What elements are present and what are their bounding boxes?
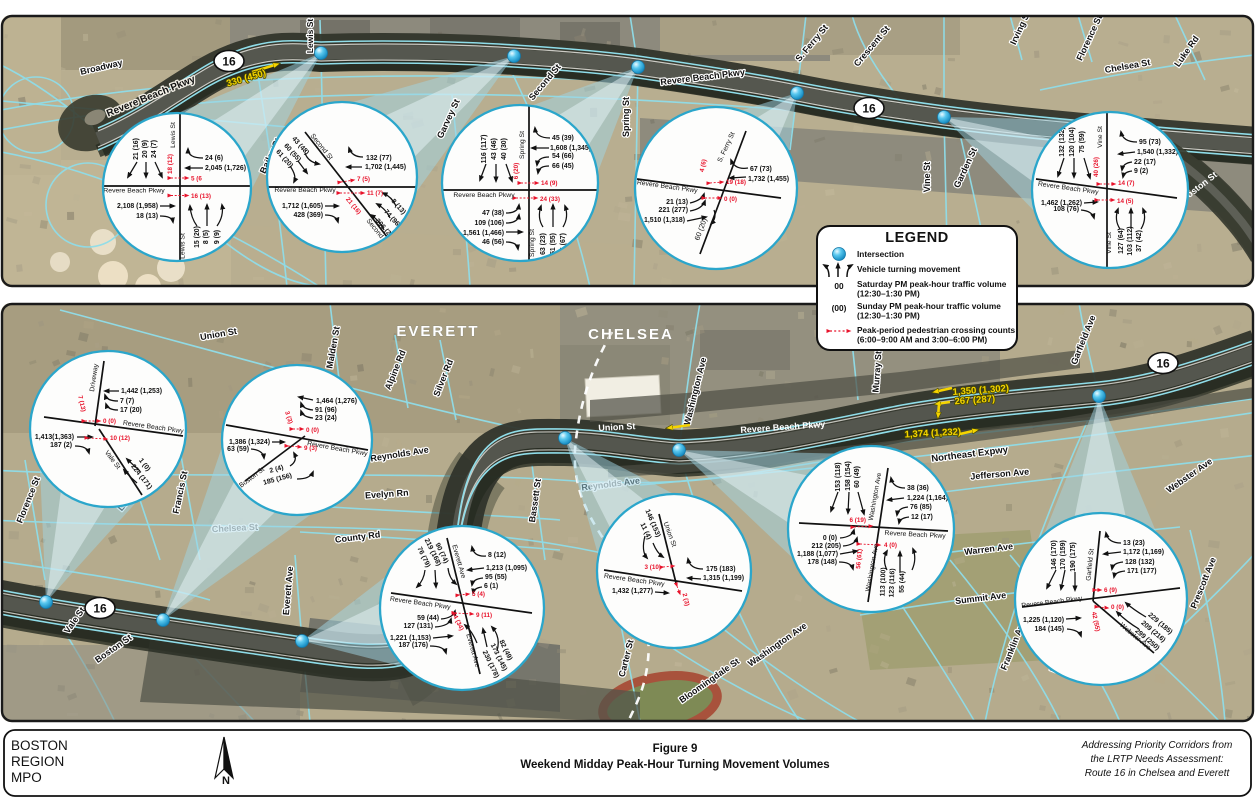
svg-text:MPO: MPO (11, 770, 42, 785)
svg-text:1,608 (1,345): 1,608 (1,345) (550, 145, 591, 152)
svg-text:LEGEND: LEGEND (885, 230, 948, 246)
svg-text:1,464 (1,276): 1,464 (1,276) (316, 398, 357, 405)
svg-text:5 (6: 5 (6 (191, 176, 202, 183)
svg-text:Spring St: Spring St (519, 131, 526, 159)
svg-text:16: 16 (862, 102, 876, 116)
svg-text:8 (12): 8 (12) (488, 552, 506, 559)
svg-text:95 (55): 95 (55) (485, 574, 507, 581)
svg-text:1,188 (1,077): 1,188 (1,077) (797, 551, 838, 558)
svg-text:Revere Beach Pkwy: Revere Beach Pkwy (274, 187, 336, 194)
svg-text:66 (45): 66 (45) (552, 163, 574, 170)
svg-text:37 (42): 37 (42) (1136, 230, 1143, 252)
svg-text:16: 16 (222, 55, 236, 69)
svg-text:1,221 (1,153): 1,221 (1,153) (390, 635, 431, 642)
svg-text:5 (4): 5 (4) (472, 591, 485, 598)
svg-text:21 (13): 21 (13) (666, 199, 688, 206)
svg-text:Lewis St: Lewis St (305, 19, 315, 54)
svg-text:Spring St: Spring St (621, 97, 631, 137)
svg-text:12 (17): 12 (17) (911, 514, 933, 521)
svg-text:9 (3): 9 (3) (304, 445, 317, 452)
svg-text:43 (46): 43 (46) (491, 138, 498, 160)
svg-text:187 (176): 187 (176) (399, 642, 429, 649)
svg-text:116 (117): 116 (117) (481, 135, 488, 164)
svg-text:(12:30–1:30 PM): (12:30–1:30 PM) (857, 311, 920, 321)
svg-text:109 (106): 109 (106) (475, 220, 505, 227)
svg-text:Revere Beach Pkwy: Revere Beach Pkwy (453, 192, 515, 199)
svg-text:23 (24): 23 (24) (315, 415, 337, 422)
svg-text:EVERETT: EVERETT (396, 323, 479, 340)
svg-text:40 (30): 40 (30) (501, 138, 508, 160)
svg-text:20 (9): 20 (9) (142, 140, 149, 158)
svg-text:0 (0): 0 (0) (823, 535, 837, 542)
svg-text:120 (104): 120 (104) (1069, 127, 1076, 157)
svg-text:22 (17): 22 (17) (1134, 159, 1156, 166)
svg-text:24 (33): 24 (33) (540, 196, 560, 203)
svg-text:153 (118): 153 (118) (835, 462, 842, 491)
svg-text:16: 16 (93, 602, 107, 616)
svg-text:N: N (222, 775, 230, 787)
svg-text:0 (0): 0 (0) (724, 196, 737, 203)
svg-text:40 (26): 40 (26) (1093, 157, 1100, 177)
svg-text:75 (59): 75 (59) (1079, 131, 1086, 153)
svg-text:(12:30–1:30 PM): (12:30–1:30 PM) (857, 289, 920, 299)
svg-text:Route 16 in Chelsea and Everet: Route 16 in Chelsea and Everett (1085, 768, 1231, 779)
svg-text:7 (5): 7 (5) (357, 176, 370, 183)
svg-text:1,213 (1,095): 1,213 (1,095) (486, 565, 527, 572)
svg-text:Vine St: Vine St (1097, 126, 1104, 148)
svg-text:128 (132): 128 (132) (1125, 559, 1155, 566)
svg-text:Vine St: Vine St (922, 162, 932, 192)
svg-text:1,540 (1,332): 1,540 (1,332) (1137, 149, 1178, 156)
svg-text:175 (183): 175 (183) (706, 566, 736, 573)
svg-text:1,510 (1,318): 1,510 (1,318) (644, 217, 685, 224)
svg-text:Figure 9: Figure 9 (653, 743, 698, 755)
svg-text:54 (66): 54 (66) (552, 153, 574, 160)
svg-text:0 (0): 0 (0) (1111, 604, 1124, 611)
svg-text:9 (11): 9 (11) (476, 612, 492, 619)
svg-text:127 (64): 127 (64) (1118, 228, 1125, 254)
svg-text:1,712 (1,605): 1,712 (1,605) (282, 203, 323, 210)
svg-text:15 (20): 15 (20) (194, 226, 201, 248)
svg-text:1,732 (1,455): 1,732 (1,455) (748, 176, 789, 183)
svg-text:2,045 (1,726): 2,045 (1,726) (205, 165, 246, 172)
svg-text:(6:00–9:00 AM and 3:00–6:00 PM: (6:00–9:00 AM and 3:00–6:00 PM) (857, 335, 987, 345)
svg-text:9 (9): 9 (9) (214, 230, 221, 244)
svg-text:CHELSEA: CHELSEA (588, 326, 674, 343)
svg-text:19 (18): 19 (18) (726, 179, 746, 186)
svg-text:47 (38): 47 (38) (482, 210, 504, 217)
svg-text:Spring St: Spring St (529, 229, 536, 257)
svg-text:132 (132): 132 (132) (1059, 127, 1066, 157)
svg-text:103 (112): 103 (112) (1127, 226, 1134, 255)
svg-text:BOSTON: BOSTON (11, 738, 68, 753)
svg-text:Saturday PM peak-hour traffic: Saturday PM peak-hour traffic volume (857, 279, 1007, 289)
svg-text:18 (12): 18 (12) (167, 154, 174, 174)
svg-text:14 (5): 14 (5) (1117, 198, 1133, 205)
svg-text:127 (131): 127 (131) (404, 623, 434, 630)
svg-text:1,702 (1,445): 1,702 (1,445) (365, 164, 406, 171)
svg-text:4 (0): 4 (0) (884, 542, 897, 549)
svg-text:63 (59): 63 (59) (227, 446, 249, 453)
svg-text:1,442 (1,253): 1,442 (1,253) (121, 388, 162, 395)
svg-text:Revere Beach Pkwy: Revere Beach Pkwy (103, 188, 165, 195)
svg-text:6 (1): 6 (1) (484, 583, 498, 590)
svg-text:Sunday PM peak-hour traffic vo: Sunday PM peak-hour traffic volume (857, 301, 1001, 311)
svg-text:1,561 (1,466): 1,561 (1,466) (463, 230, 504, 237)
svg-text:6 (9): 6 (9) (1104, 587, 1117, 594)
svg-text:1,225 (1,120): 1,225 (1,120) (1023, 617, 1064, 624)
svg-text:212 (205): 212 (205) (812, 543, 842, 550)
svg-text:63 (23): 63 (23) (540, 233, 547, 255)
svg-text:Peak-period pedestrian crossin: Peak-period pedestrian crossing counts (857, 325, 1016, 335)
svg-text:18 (13): 18 (13) (136, 213, 158, 220)
svg-text:Weekend Midday Peak-Hour Turni: Weekend Midday Peak-Hour Turning Movemen… (520, 759, 829, 771)
svg-text:Vine St: Vine St (1106, 232, 1113, 254)
svg-text:3 (10): 3 (10) (645, 564, 661, 571)
svg-text:67 (73): 67 (73) (750, 166, 772, 173)
svg-text:21 (16): 21 (16) (133, 138, 140, 160)
svg-text:46 (56): 46 (56) (482, 239, 504, 246)
svg-text:1,224 (1,164): 1,224 (1,164) (907, 495, 948, 502)
svg-text:00: 00 (834, 281, 844, 291)
svg-text:8 (5): 8 (5) (203, 230, 210, 244)
svg-text:17 (20): 17 (20) (120, 407, 142, 414)
svg-text:428 (369): 428 (369) (294, 212, 324, 219)
svg-text:187 (2): 187 (2) (50, 442, 72, 449)
svg-text:59 (44): 59 (44) (417, 615, 439, 622)
svg-text:221 (277): 221 (277) (659, 207, 689, 214)
svg-text:6 (20): 6 (20) (513, 163, 520, 179)
svg-text:1,413(1,363): 1,413(1,363) (35, 434, 74, 441)
svg-text:158 (154): 158 (154) (845, 461, 852, 491)
svg-text:16: 16 (1156, 357, 1170, 371)
svg-text:190 (175): 190 (175) (1070, 542, 1077, 572)
svg-text:0 (0): 0 (0) (103, 418, 116, 425)
svg-text:38 (36): 38 (36) (907, 485, 929, 492)
svg-text:Addressing Priority Corridors: Addressing Priority Corridors from (1081, 740, 1233, 751)
svg-text:16 (13): 16 (13) (191, 193, 211, 200)
svg-text:171 (177): 171 (177) (1127, 568, 1157, 575)
svg-text:REGION: REGION (11, 754, 64, 769)
svg-text:7 (7): 7 (7) (120, 398, 134, 405)
svg-text:14 (7): 14 (7) (1118, 180, 1134, 187)
svg-text:(00): (00) (832, 303, 847, 313)
svg-text:11 (7): 11 (7) (367, 190, 383, 197)
svg-text:1,172 (1,169): 1,172 (1,169) (1123, 549, 1164, 556)
svg-text:45 (39): 45 (39) (552, 135, 574, 142)
svg-text:132 (77): 132 (77) (366, 155, 392, 162)
svg-text:1,432 (1,277): 1,432 (1,277) (612, 588, 653, 595)
svg-text:123 (116): 123 (116) (888, 568, 896, 597)
svg-text:91 (96): 91 (96) (315, 407, 337, 414)
svg-text:184 (145): 184 (145) (1035, 626, 1065, 633)
svg-text:178 (148): 178 (148) (808, 559, 838, 566)
svg-text:146 (170): 146 (170) (1051, 540, 1058, 570)
svg-text:the LRTP Needs Assessment:: the LRTP Needs Assessment: (1090, 754, 1223, 765)
svg-text:60 (49): 60 (49) (854, 466, 861, 488)
svg-text:9 (2): 9 (2) (1134, 168, 1148, 175)
svg-text:24 (6): 24 (6) (205, 155, 223, 162)
svg-text:14 (9): 14 (9) (541, 180, 557, 187)
svg-text:0 (0): 0 (0) (306, 427, 319, 434)
svg-text:113 (100): 113 (100) (879, 567, 887, 596)
svg-text:55 (44): 55 (44) (899, 571, 907, 593)
svg-text:Union St: Union St (598, 421, 635, 433)
svg-text:1,386 (1,324): 1,386 (1,324) (229, 439, 270, 446)
svg-text:6 (19): 6 (19) (850, 517, 866, 524)
svg-text:76 (85): 76 (85) (910, 504, 932, 511)
svg-text:1,315 (1,199): 1,315 (1,199) (703, 575, 744, 582)
svg-text:108 (76): 108 (76) (1053, 206, 1079, 213)
svg-text:13 (23): 13 (23) (1123, 540, 1145, 547)
svg-text:2,108 (1,958): 2,108 (1,958) (117, 203, 158, 210)
svg-text:170 (159): 170 (159) (1060, 540, 1067, 570)
svg-text:Intersection: Intersection (857, 249, 904, 259)
svg-text:95 (73): 95 (73) (1139, 139, 1161, 146)
svg-text:Lewis St: Lewis St (170, 122, 177, 148)
svg-text:Vehicle turning movement: Vehicle turning movement (857, 264, 961, 274)
svg-text:24 (7): 24 (7) (151, 140, 158, 158)
svg-text:10 (12): 10 (12) (110, 435, 130, 442)
svg-text:Lewis St: Lewis St (180, 233, 187, 259)
